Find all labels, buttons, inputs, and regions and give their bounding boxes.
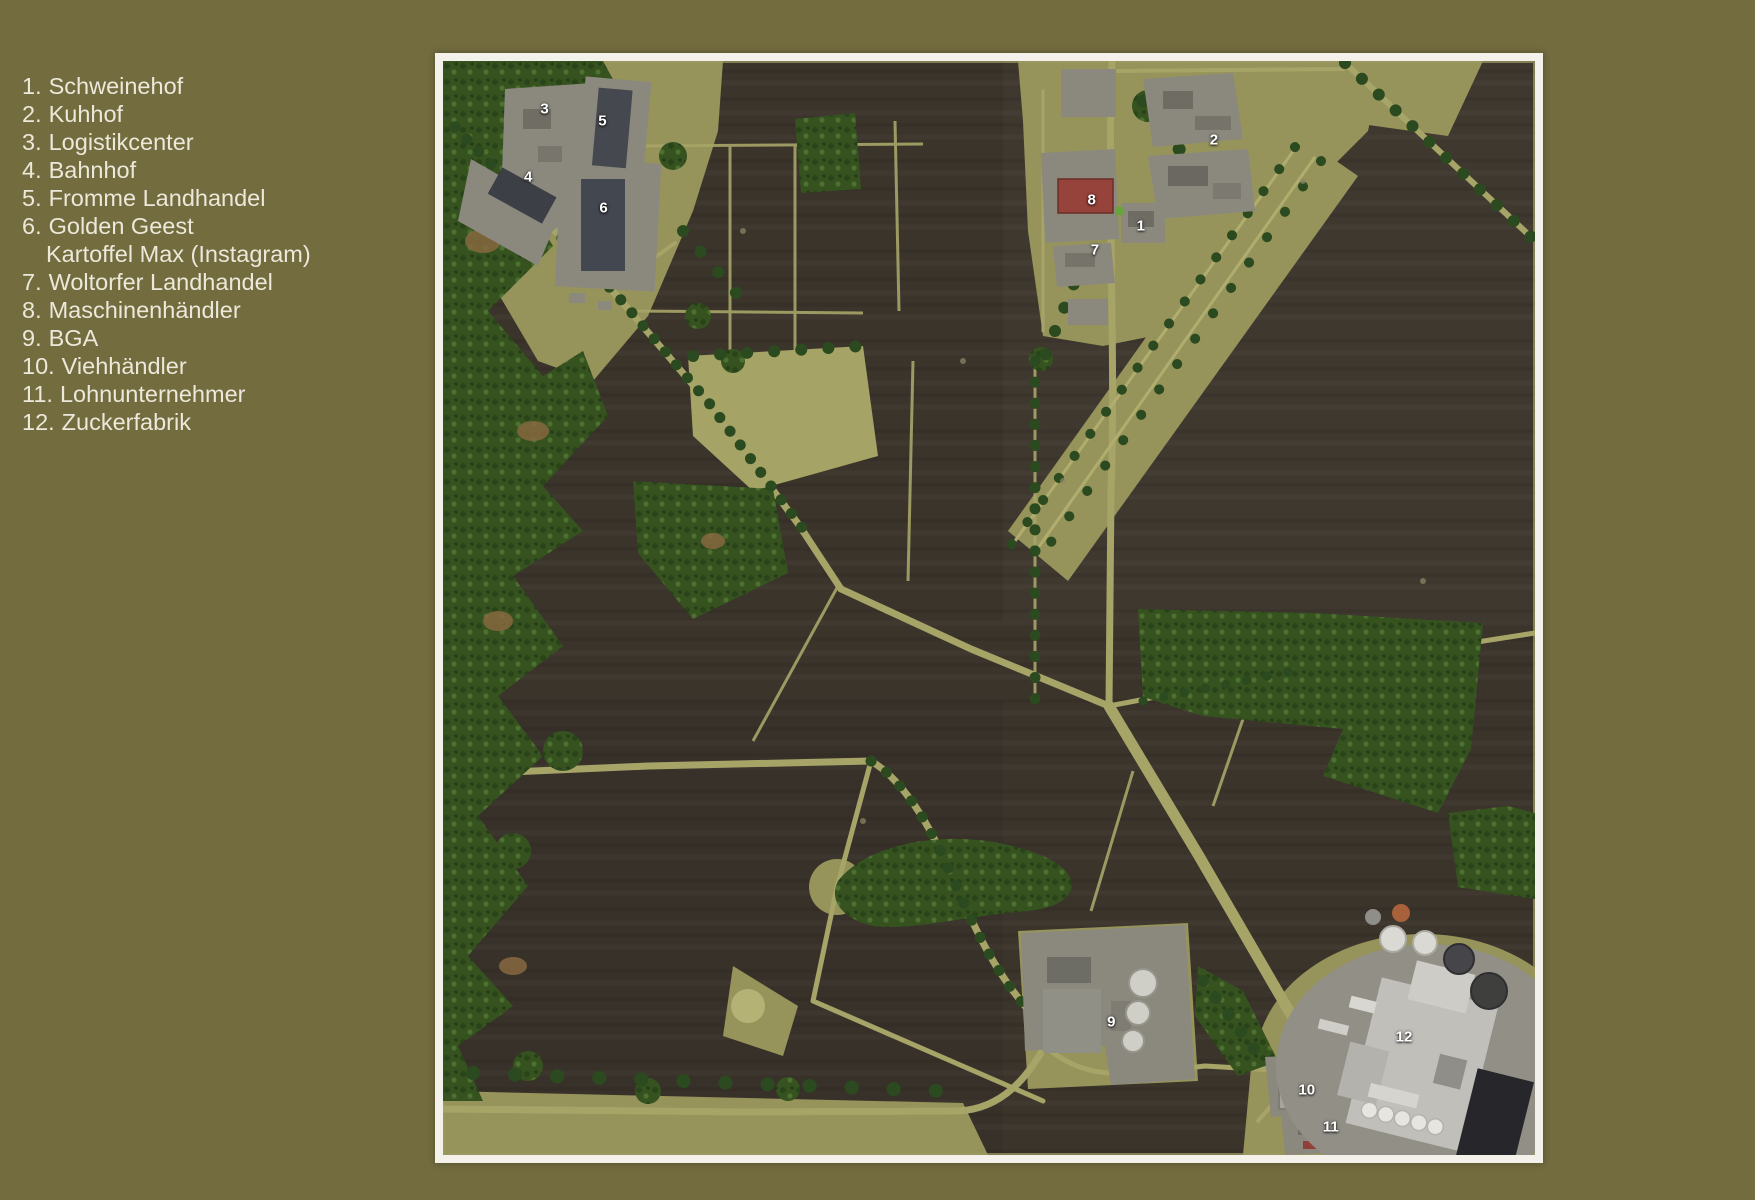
legend-item-label: BGA: [49, 325, 99, 351]
page: { "theme":{ "page_bg":"#736C3F", "frame"…: [0, 0, 1755, 1200]
legend-item-label: Maschinenhändler: [49, 297, 241, 323]
legend-item: 6.Golden Geest Kartoffel Max (Instagram): [22, 212, 311, 268]
legend-item: 8.Maschinenhändler: [22, 296, 311, 324]
map-marker: 2: [1210, 131, 1218, 148]
legend-item: 11.Lohnunternehmer: [22, 380, 311, 408]
map-marker-number: 8: [1087, 191, 1095, 208]
legend-item: 5.Fromme Landhandel: [22, 184, 311, 212]
map-marker-number: 7: [1091, 242, 1099, 259]
legend-item-number: 10.: [22, 353, 55, 379]
legend-item-label: Logistikcenter: [49, 129, 194, 155]
legend-item-number: 11.: [22, 381, 53, 407]
map-marker-number: 9: [1107, 1013, 1115, 1030]
map-marker: 12: [1396, 1028, 1413, 1045]
map-marker-number: 11: [1323, 1118, 1339, 1135]
map-marker: 1: [1137, 218, 1145, 235]
legend-item: 3.Logistikcenter: [22, 128, 311, 156]
map-marker: 8: [1087, 191, 1095, 208]
legend-item: 12.Zuckerfabrik: [22, 408, 311, 436]
map-marker: 11: [1323, 1118, 1339, 1135]
legend-item-label: Fromme Landhandel: [49, 185, 266, 211]
legend-item: 2.Kuhhof: [22, 100, 311, 128]
legend-item: 10.Viehhändler: [22, 352, 311, 380]
map-marker-number: 3: [540, 101, 548, 118]
legend-item-label: Viehhändler: [62, 353, 187, 379]
legend-item-number: 7.: [22, 269, 42, 295]
legend-item-number: 6.: [22, 213, 42, 239]
legend-item: 7.Woltorfer Landhandel: [22, 268, 311, 296]
legend-item: 4.Bahnhof: [22, 156, 311, 184]
legend-item-label: Golden Geest: [49, 213, 194, 239]
legend-item-label: Kuhhof: [49, 101, 123, 127]
map-marker-number: 10: [1298, 1082, 1315, 1099]
map-markers-layer: 123456789101112: [443, 61, 1535, 1155]
legend-item-label: Lohnunternehmer: [60, 381, 246, 407]
legend-item-number: 2.: [22, 101, 42, 127]
legend-item-label: Schweinehof: [49, 73, 184, 99]
map-marker: 6: [599, 199, 607, 216]
legend-item-label: Bahnhof: [49, 157, 137, 183]
legend-item-number: 5.: [22, 185, 42, 211]
legend-item: 9.BGA: [22, 324, 311, 352]
map-marker: 7: [1091, 242, 1099, 259]
map-marker: 3: [540, 101, 548, 118]
legend-item-number: 12.: [22, 409, 55, 435]
map-panel: 123456789101112: [435, 53, 1543, 1163]
map-marker-number: 2: [1210, 131, 1218, 148]
legend-item-number: 9.: [22, 325, 42, 351]
map-marker: 5: [598, 113, 606, 130]
legend-item-number: 4.: [22, 157, 42, 183]
legend-item-label: Woltorfer Landhandel: [49, 269, 273, 295]
map-marker: 4: [524, 168, 532, 185]
map-marker-number: 6: [599, 199, 607, 216]
map-marker-number: 5: [598, 113, 606, 130]
legend-item-number: 8.: [22, 297, 42, 323]
map-marker: 9: [1107, 1013, 1115, 1030]
map-marker-number: 4: [524, 168, 532, 185]
legend-item-label: Zuckerfabrik: [62, 409, 191, 435]
legend-item-number: 1.: [22, 73, 42, 99]
legend-item-number: 3.: [22, 129, 42, 155]
map-marker: 10: [1298, 1082, 1315, 1099]
legend-item-sublabel: Kartoffel Max (Instagram): [22, 240, 311, 268]
map-marker-number: 1: [1137, 218, 1145, 235]
legend: 1.Schweinehof 2.Kuhhof 3.Logistikcenter …: [22, 72, 311, 436]
map-marker-number: 12: [1396, 1028, 1413, 1045]
legend-item: 1.Schweinehof: [22, 72, 311, 100]
